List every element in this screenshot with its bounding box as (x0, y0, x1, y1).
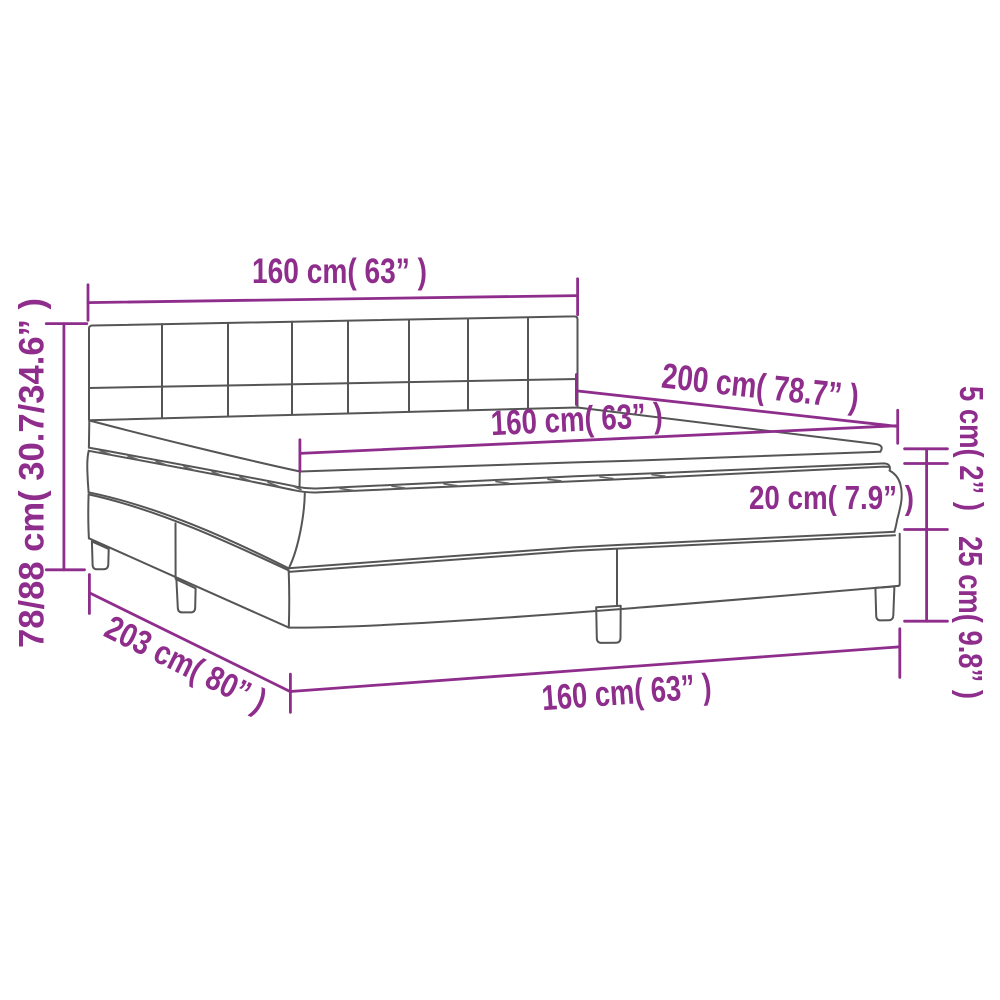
svg-text:20 cm( 7.9” ): 20 cm( 7.9” ) (749, 480, 914, 517)
svg-text:78/88 cm( 30.7/34.6” ): 78/88 cm( 30.7/34.6” ) (12, 298, 51, 648)
svg-text:25 cm( 9.8” ): 25 cm( 9.8” ) (951, 536, 988, 699)
svg-text:5 cm( 2” ): 5 cm( 2” ) (952, 386, 989, 511)
svg-text:160 cm( 63” ): 160 cm( 63” ) (252, 251, 427, 291)
